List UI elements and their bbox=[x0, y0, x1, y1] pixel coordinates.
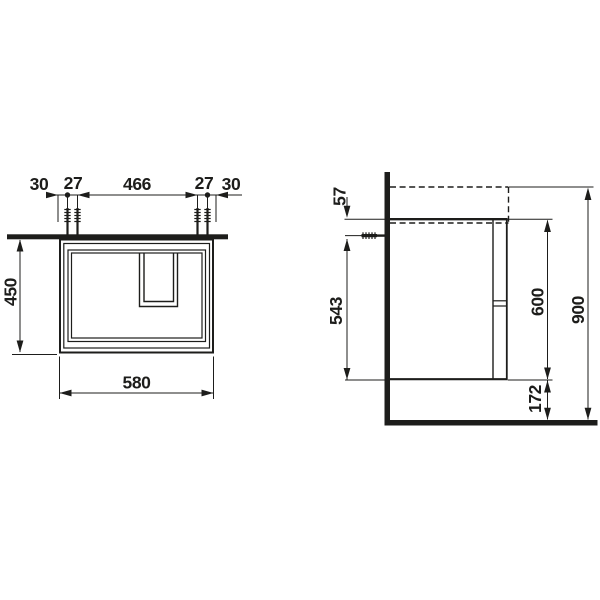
dim-label-450: 450 bbox=[1, 277, 21, 306]
dim-label-30-left: 30 bbox=[30, 174, 49, 194]
dim-900: 900 bbox=[568, 188, 591, 420]
wall bbox=[385, 172, 391, 426]
cabinet-frame-3 bbox=[68, 250, 206, 342]
arrow-up-icon bbox=[344, 239, 351, 251]
dim-172: 172 bbox=[525, 380, 551, 420]
cabinet-frame-2 bbox=[64, 244, 210, 349]
arrow-down-icon bbox=[544, 408, 551, 420]
dim-width-580: 580 bbox=[60, 357, 214, 400]
floor bbox=[385, 420, 598, 426]
arrow-right-icon bbox=[202, 390, 214, 397]
dim-label-466: 466 bbox=[123, 174, 152, 194]
bolt-position-dot bbox=[65, 192, 70, 197]
dim-label-543: 543 bbox=[326, 296, 346, 325]
dim-543: 543 bbox=[326, 239, 350, 380]
hanger-bolt-side-icon bbox=[345, 232, 385, 239]
dim-label-172: 172 bbox=[525, 384, 545, 413]
arrow-down-icon bbox=[344, 206, 351, 218]
dim-chain-top: 30 27 466 27 30 bbox=[30, 173, 242, 222]
arrow-left-icon bbox=[60, 390, 72, 397]
leader-lines bbox=[345, 187, 594, 380]
bolt-position-dot bbox=[205, 192, 210, 197]
cabinet-side-outline bbox=[390, 219, 508, 380]
dim-label-580: 580 bbox=[123, 373, 152, 393]
hanger-bolt-icon bbox=[64, 208, 70, 235]
dim-57: 57 bbox=[330, 187, 351, 218]
dim-label-57: 57 bbox=[330, 187, 350, 206]
dim-label-600: 600 bbox=[528, 287, 548, 316]
front-view: 30 27 466 27 30 bbox=[1, 173, 243, 399]
side-view: 57 543 600 172 900 bbox=[326, 172, 598, 426]
siphon-cutout-inner bbox=[144, 253, 174, 302]
technical-drawing: 30 27 466 27 30 bbox=[0, 0, 600, 600]
arrow-down-icon bbox=[17, 341, 24, 353]
siphon-cutout-outer bbox=[140, 253, 178, 307]
dim-label-900: 900 bbox=[568, 295, 588, 324]
vanity-dimension-drawing: 30 27 466 27 30 bbox=[0, 0, 600, 600]
hanger-bolt-icon bbox=[194, 208, 200, 235]
arrow-up-icon bbox=[544, 220, 551, 232]
arrow-down-icon bbox=[344, 368, 351, 380]
cabinet-front-outline bbox=[60, 240, 213, 353]
dim-600: 600 bbox=[528, 220, 551, 380]
dim-label-27-right: 27 bbox=[195, 173, 214, 193]
hanger-bolts-front bbox=[64, 208, 210, 235]
arrow-up-icon bbox=[585, 188, 592, 200]
arrow-up-icon bbox=[17, 240, 24, 252]
hanger-bolt-icon bbox=[74, 208, 80, 235]
dim-height-450: 450 bbox=[1, 240, 58, 355]
arrow-down-icon bbox=[585, 408, 592, 420]
arrow-up-icon bbox=[544, 380, 551, 392]
drawer-front-opening bbox=[72, 253, 203, 338]
dim-label-27-left: 27 bbox=[64, 173, 83, 193]
washbasin-dashed-outline bbox=[390, 187, 509, 223]
cabinet-outer-box bbox=[60, 240, 213, 353]
arrow-down-icon bbox=[544, 368, 551, 380]
hanger-bolt-icon bbox=[204, 208, 210, 235]
dim-label-30-right: 30 bbox=[222, 174, 241, 194]
